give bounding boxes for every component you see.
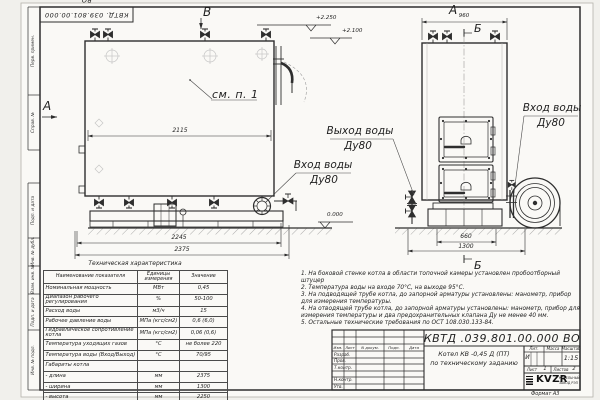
- spec-cell-name: Гидравлическое сопротивление котла: [44, 327, 138, 339]
- technical-notes: 1. На боковой стенке котла в области топ…: [301, 271, 581, 328]
- tb-massa-label: Масса: [547, 347, 560, 351]
- doc-number-stamp: КВТД. 039.801.00.000 ВО: [40, 7, 133, 22]
- view-label-v: В: [203, 6, 211, 18]
- note-line: 1. На боковой стенке котла в области топ…: [301, 271, 581, 285]
- spec-cell-value: 50-100: [180, 294, 228, 306]
- spec-cell-name: Расход воды: [44, 306, 138, 317]
- spec-cell-name: - высота: [44, 393, 138, 400]
- tb-row-prov: Пров.: [334, 359, 346, 363]
- spec-cell-unit: мм: [138, 382, 180, 393]
- dim-side-top: 960: [459, 14, 470, 20]
- spec-row: - ширинамм1300: [44, 382, 228, 393]
- spec-table-title: Техническая характеристика: [88, 261, 181, 267]
- spec-row: Диапазон рабочего регулирования%50-100: [44, 294, 228, 306]
- spec-header-row: Наименование показателя Единицы измерени…: [44, 271, 228, 284]
- tb-col-izm: Изм.: [334, 346, 343, 350]
- spec-cell-unit: МПа (кгс/см2): [138, 327, 180, 339]
- doc-number: КВТД .039.801.00.000 ВО: [424, 333, 580, 344]
- tb-row-nkontr: Н.контр.: [334, 378, 353, 382]
- note-line: 5. Остальные технические требования по О…: [301, 320, 581, 327]
- spec-cell-name: Температура уходящих газов: [44, 339, 138, 350]
- spec-row: Габариты котла: [44, 361, 228, 372]
- spec-cell-unit: мм: [138, 371, 180, 382]
- label-water-outlet: Выход воды: [327, 126, 394, 137]
- spec-header-unit: Единицы измерения: [138, 271, 180, 284]
- dim-front-skid: 2245: [171, 235, 186, 241]
- margin-label-perv-primen: Перв. примен.: [28, 7, 40, 95]
- margin-label-sprav: Справ. №: [28, 95, 40, 150]
- section-label-b-top: Б: [474, 23, 482, 34]
- note-line: 2. Температура воды на входе 70°С, на вы…: [301, 285, 581, 292]
- spec-cell-value: [180, 361, 228, 372]
- spec-row: - длинамм2375: [44, 371, 228, 382]
- dim-front-total: 2375: [174, 247, 189, 253]
- tb-col-ndoc: N докум.: [361, 346, 379, 350]
- tb-row-utv: Утв.: [334, 385, 343, 389]
- spec-cell-value: 70/95: [180, 350, 228, 361]
- view-label-a-left: А: [43, 100, 51, 112]
- spec-cell-value: 0,06 (0,6): [180, 327, 228, 339]
- section-label-b-bottom: Б: [474, 260, 482, 271]
- label-water-inlet-front-dn: Ду80: [310, 175, 338, 186]
- spec-cell-unit: МПа (кгс/см2): [138, 317, 180, 328]
- label-water-inlet-side: Вход воды: [523, 103, 582, 114]
- spec-cell-unit: мм: [138, 393, 180, 400]
- callout-see-item-1: см. п. 1: [212, 89, 259, 100]
- spec-cell-name: Габариты котла: [44, 361, 138, 372]
- spec-cell-unit: °С: [138, 350, 180, 361]
- format-label: Формат А3: [531, 392, 559, 397]
- kvzr-logo-sub1: КОТЕЛЬНЫЙ: [559, 376, 580, 380]
- tb-listov-label: Листов: [554, 368, 569, 372]
- kvzr-logo-icon: [526, 376, 533, 385]
- spec-header-value: Значение: [180, 271, 228, 284]
- dim-front-width: 2115: [172, 128, 187, 134]
- spec-row: Номинальная мощностьМВт0,45: [44, 284, 228, 295]
- spec-cell-value: 1300: [180, 382, 228, 393]
- kvzr-logo-sub2: ЗАВОД РЭП: [559, 381, 578, 385]
- label-water-inlet-front: Вход воды: [294, 160, 353, 171]
- elevation-zero: 0.000: [327, 213, 343, 219]
- spec-row: Расход водым3/ч15: [44, 306, 228, 317]
- tb-lit-label: Лит.: [529, 347, 538, 351]
- note-line: 4. На отводящей трубе котла, до запорной…: [301, 306, 581, 320]
- spec-cell-value: 0,6 (6,0): [180, 317, 228, 328]
- spec-cell-value: 0,45: [180, 284, 228, 295]
- tb-lit-value: И: [525, 355, 530, 361]
- spec-cell-name: Диапазон рабочего регулирования: [44, 294, 138, 306]
- spec-cell-unit: м3/ч: [138, 306, 180, 317]
- tb-masshtab-value: 1:15: [564, 355, 579, 362]
- spec-header-name: Наименование показателя: [44, 271, 138, 284]
- margin-label-podp-data-2: Подп. и дата: [28, 294, 40, 330]
- view-label-a-side: А: [449, 4, 457, 16]
- tb-listov-value: 2: [572, 367, 575, 372]
- dim-side-total: 1300: [458, 244, 473, 250]
- spec-cell-value: не более 220: [180, 339, 228, 350]
- margin-label-vzam-inv: Взам. инв. №: [28, 266, 40, 294]
- spec-cell-name: - длина: [44, 371, 138, 382]
- doc-title-line1: Котел КВ -0,45 Д (ПТ): [438, 352, 509, 358]
- tb-row-tkontr: Т.контр.: [334, 366, 352, 370]
- tb-row-razrab: Разраб.: [334, 353, 350, 357]
- elevation-2100: +2.100: [342, 29, 362, 35]
- label-water-inlet-side-dn: Ду80: [537, 118, 565, 129]
- spec-row: Температура воды (Вход/Выход)°С70/95: [44, 350, 228, 361]
- spec-cell-name: Температура воды (Вход/Выход): [44, 350, 138, 361]
- tb-col-data: Дата: [409, 346, 419, 350]
- spec-cell-unit: [138, 361, 180, 372]
- spec-cell-value: 2250: [180, 393, 228, 400]
- spec-cell-unit: МВт: [138, 284, 180, 295]
- dim-side-skid: 660: [460, 234, 471, 240]
- margin-label-inv-dubl: Инв. № дубл.: [28, 238, 40, 266]
- tb-masshtab-label: Масштаб: [561, 347, 580, 351]
- tb-col-podp: Подп.: [388, 346, 400, 350]
- spec-table: Наименование показателя Единицы измерени…: [43, 270, 228, 400]
- label-water-outlet-dn: Ду80: [344, 141, 372, 152]
- doc-title-line2: по техническому заданию: [430, 361, 518, 367]
- spec-cell-name: - ширина: [44, 382, 138, 393]
- tb-list-value: 1: [543, 367, 546, 372]
- spec-row: - высотамм2250: [44, 393, 228, 400]
- spec-row: Гидравлическое сопротивление котлаМПа (к…: [44, 327, 228, 339]
- margin-label-podp-data-1: Подп. и дата: [28, 183, 40, 238]
- tb-col-list: Лист: [345, 346, 355, 350]
- spec-cell-value: 2375: [180, 371, 228, 382]
- spec-cell-unit: °С: [138, 339, 180, 350]
- spec-cell-name: Номинальная мощность: [44, 284, 138, 295]
- spec-row: Рабочее давление водыМПа (кгс/см2)0,6 (6…: [44, 317, 228, 328]
- drawing-sheet: КВТД. 039.801.00.000 ВО Перв. примен. Сп…: [0, 0, 600, 400]
- note-line: 3. На подводящей трубе котла, до запорно…: [301, 292, 581, 306]
- spec-cell-name: Рабочее давление воды: [44, 317, 138, 328]
- elevation-2250: +2.250: [316, 16, 336, 22]
- spec-cell-unit: %: [138, 294, 180, 306]
- spec-cell-value: 15: [180, 306, 228, 317]
- spec-row: Температура уходящих газов°Сне более 220: [44, 339, 228, 350]
- tb-list-label: Лист: [527, 368, 537, 372]
- margin-label-inv-podl: Инв. № подл.: [28, 330, 40, 390]
